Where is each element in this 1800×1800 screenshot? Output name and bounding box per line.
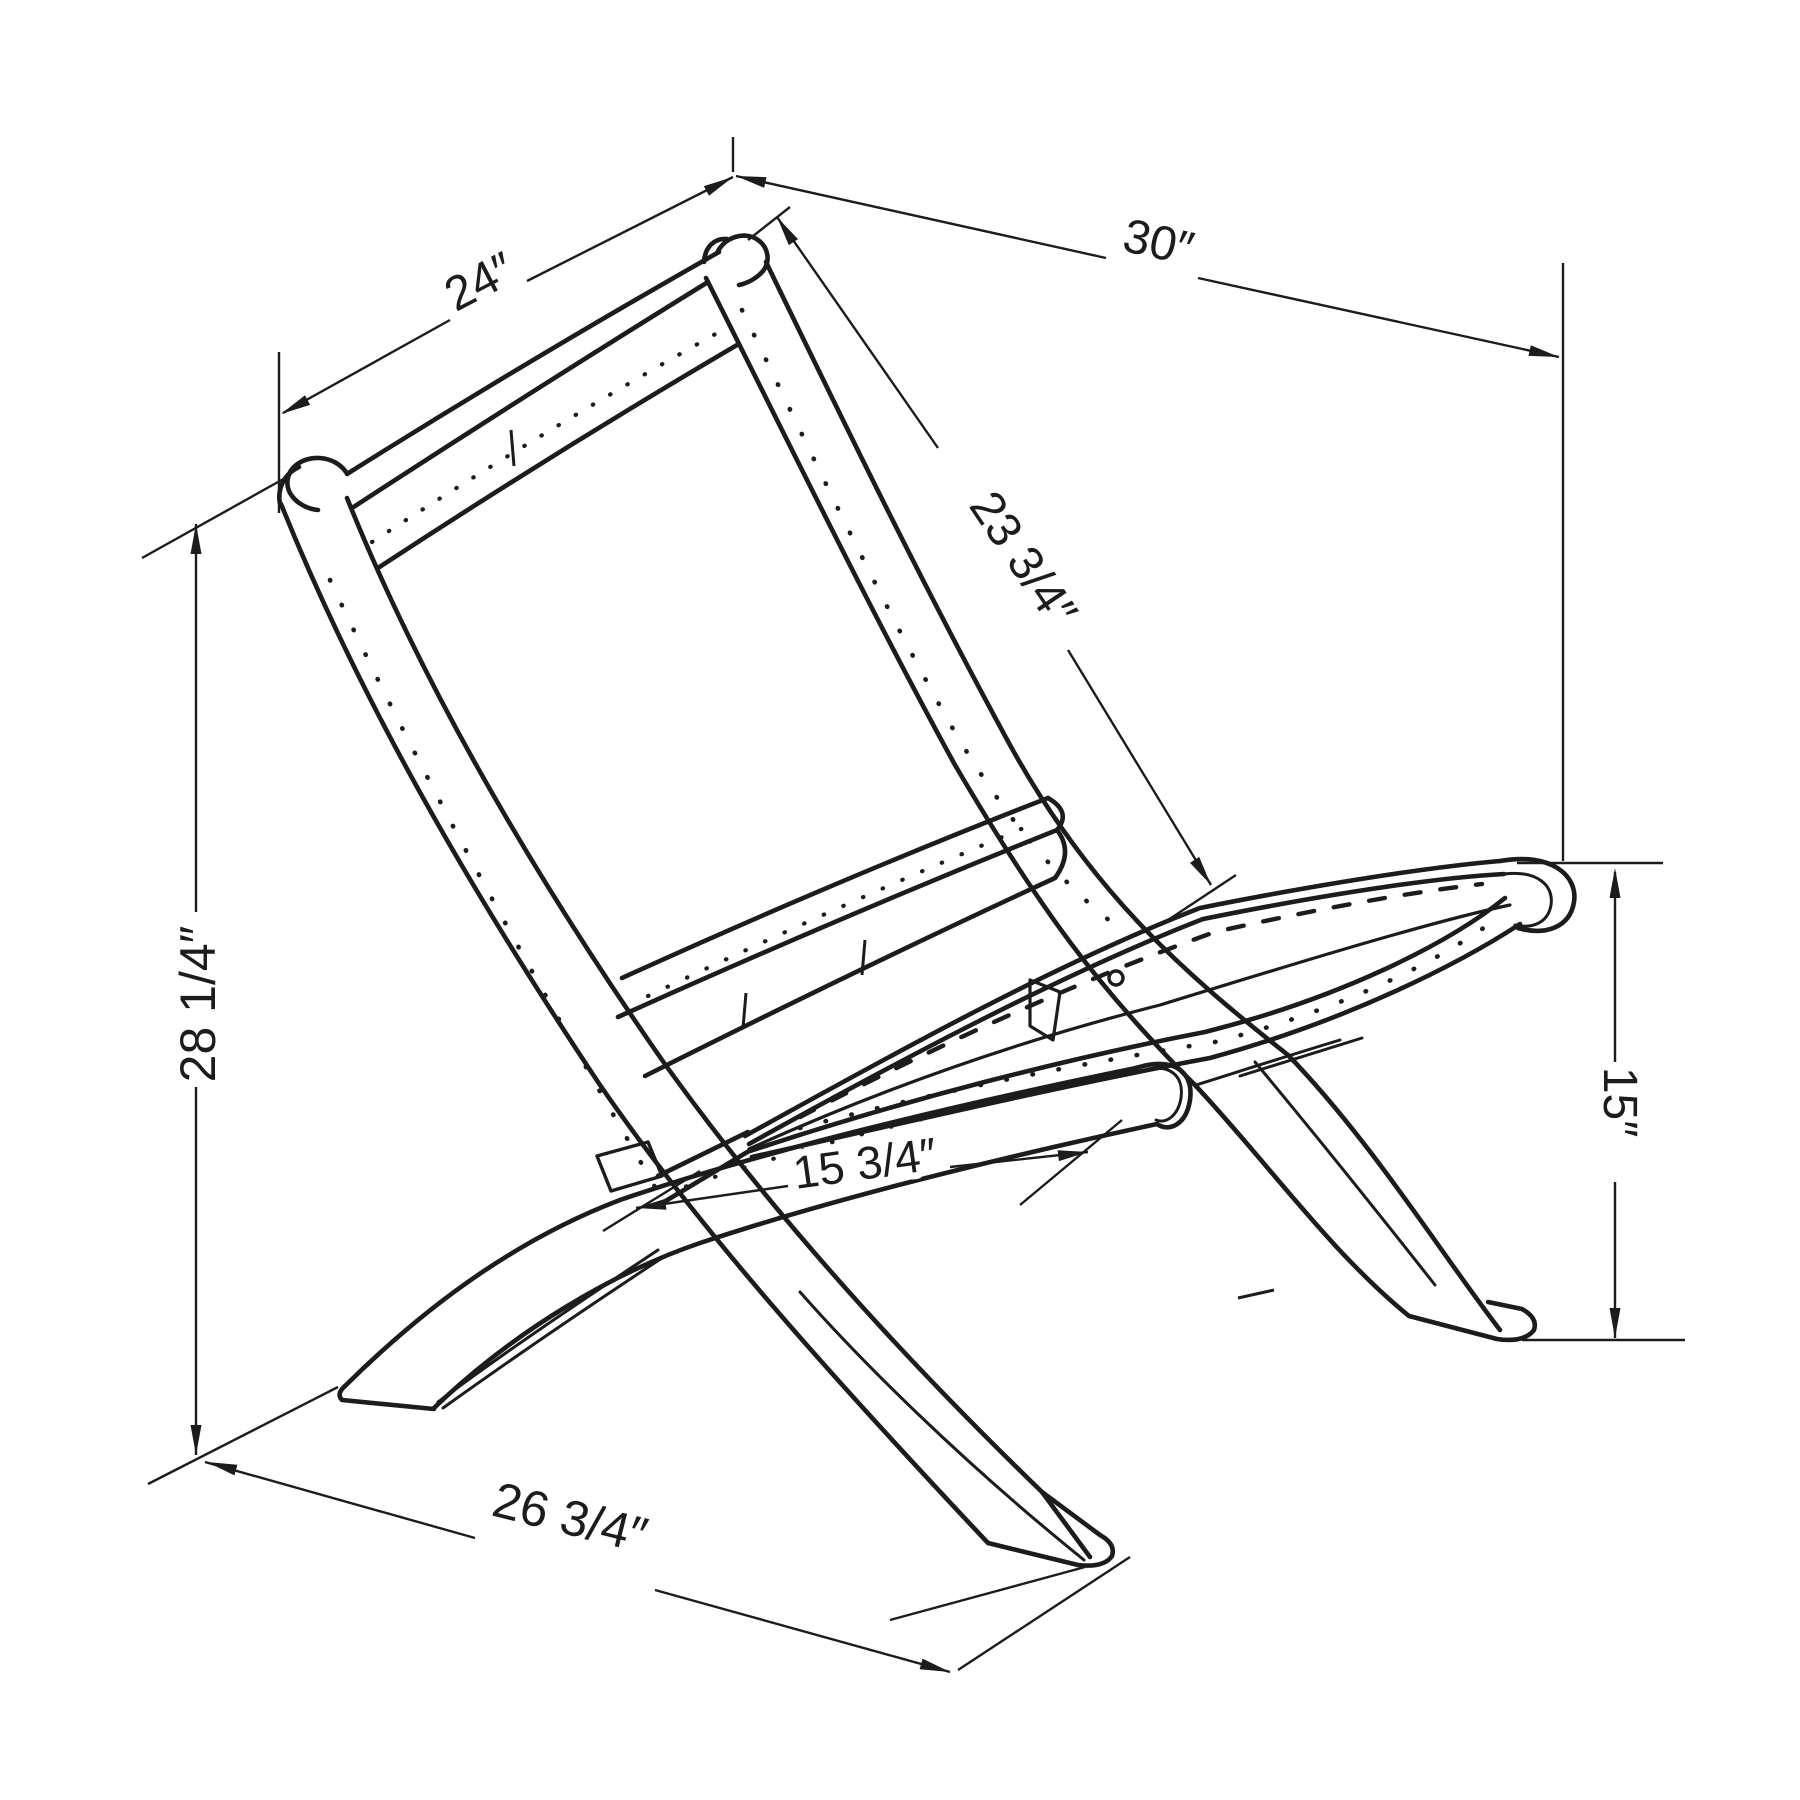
svg-text:15″: 15″ bbox=[1593, 1067, 1646, 1137]
svg-text:28 1/4″: 28 1/4″ bbox=[170, 926, 226, 1083]
